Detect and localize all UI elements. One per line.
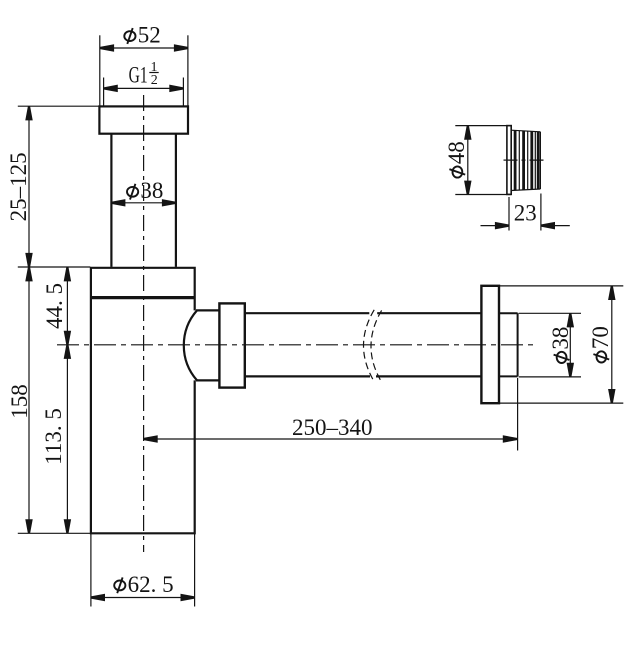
- svg-text:23: 23: [514, 201, 537, 226]
- svg-text:62. 5: 62. 5: [128, 572, 174, 597]
- svg-text:158: 158: [7, 384, 32, 419]
- svg-text:48: 48: [444, 141, 469, 164]
- svg-text:38: 38: [548, 327, 573, 350]
- svg-text:25–125: 25–125: [6, 152, 31, 221]
- svg-text:113. 5: 113. 5: [41, 408, 66, 465]
- svg-text:G1: G1: [129, 63, 148, 88]
- svg-text:70: 70: [588, 326, 613, 349]
- svg-text:52: 52: [138, 23, 161, 48]
- svg-text:250–340: 250–340: [292, 415, 373, 440]
- svg-text:44. 5: 44. 5: [42, 283, 67, 329]
- svg-text:2: 2: [151, 73, 158, 88]
- svg-text:38: 38: [140, 178, 163, 203]
